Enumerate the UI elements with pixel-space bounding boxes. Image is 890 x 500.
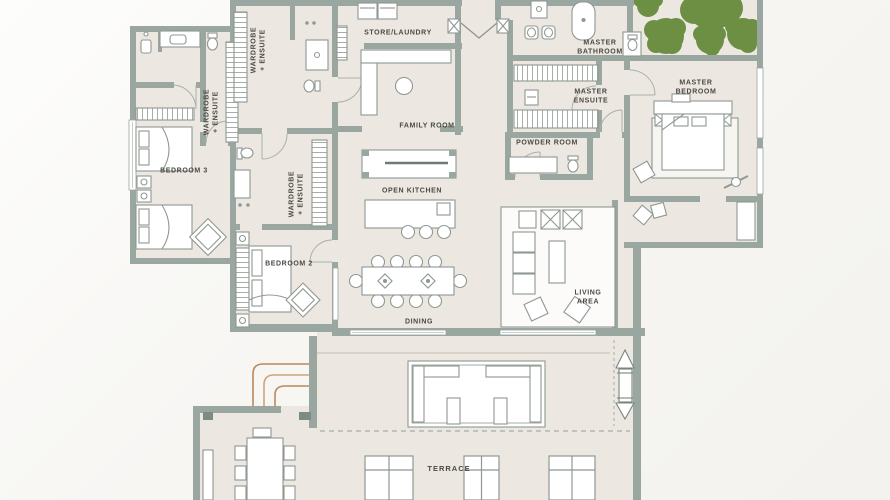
pillow-icon bbox=[252, 280, 262, 306]
toilet-icon bbox=[208, 38, 218, 50]
counter-icon bbox=[361, 63, 377, 115]
floor-plan-canvas: WARDROBE + ENSUITE WARDROBE + ENSUITE WA… bbox=[0, 0, 890, 500]
side-table-icon bbox=[519, 211, 536, 228]
window-icon bbox=[333, 268, 338, 320]
chair-icon bbox=[235, 486, 246, 500]
stool-icon bbox=[402, 226, 415, 239]
hook-icon bbox=[144, 32, 148, 36]
dryer-icon bbox=[378, 3, 397, 19]
living-area-furniture bbox=[501, 207, 615, 327]
table-round-icon bbox=[396, 78, 413, 95]
window-icon bbox=[757, 148, 763, 194]
steps-line bbox=[275, 386, 311, 408]
chair-icon bbox=[284, 466, 295, 480]
vanity-icon bbox=[509, 157, 557, 173]
floor-plan-drawing bbox=[0, 0, 890, 500]
wardrobe-icon bbox=[234, 12, 247, 102]
outdoor-sofa-icon bbox=[530, 366, 541, 422]
chair-icon bbox=[284, 486, 295, 500]
toilet-icon bbox=[241, 148, 253, 158]
sink-icon bbox=[141, 40, 151, 53]
sofa-seat-icon bbox=[513, 274, 535, 294]
island-sink-icon bbox=[437, 203, 450, 215]
sofa-seat-icon bbox=[513, 232, 535, 252]
window-icon bbox=[757, 68, 763, 138]
pillow-icon bbox=[139, 149, 149, 165]
pillow-icon bbox=[692, 117, 706, 126]
spot-icon bbox=[247, 204, 249, 206]
toilet-icon bbox=[628, 40, 637, 51]
steps-line bbox=[264, 375, 311, 408]
basin-icon bbox=[545, 28, 553, 37]
dining-table bbox=[362, 267, 454, 295]
toilet-tank-icon bbox=[208, 33, 217, 38]
spot-icon bbox=[313, 22, 315, 24]
wardrobe-icon bbox=[514, 65, 598, 81]
toilet-tank-icon bbox=[315, 81, 320, 91]
lamp-icon bbox=[141, 193, 147, 199]
ensuite-c-fixtures bbox=[234, 148, 253, 206]
sofa-seat-icon bbox=[513, 253, 535, 273]
outdoor-table bbox=[247, 438, 283, 500]
ottoman-icon bbox=[494, 398, 507, 424]
shower-icon bbox=[234, 170, 250, 198]
lamp-icon bbox=[141, 179, 147, 185]
wardrobe-icon bbox=[514, 110, 598, 128]
armchair-icon bbox=[651, 202, 667, 218]
stool-icon bbox=[438, 226, 451, 239]
chair-icon bbox=[372, 295, 385, 308]
pillow-icon bbox=[674, 117, 688, 126]
headboard-icon bbox=[654, 101, 732, 114]
telescope-icon bbox=[732, 178, 741, 187]
stool-icon bbox=[420, 226, 433, 239]
dresser-icon bbox=[136, 108, 194, 120]
shower-head-icon bbox=[537, 7, 542, 12]
spot-icon bbox=[306, 22, 308, 24]
toilet-icon bbox=[304, 80, 314, 92]
outdoor-sofa-icon bbox=[413, 366, 424, 422]
terrace-windows bbox=[365, 456, 595, 500]
chair-icon bbox=[235, 446, 246, 460]
pillow-icon bbox=[139, 227, 149, 243]
spot-icon bbox=[239, 204, 241, 206]
ottoman-icon bbox=[447, 398, 460, 424]
toilet-tank-icon bbox=[568, 156, 578, 160]
basin-icon bbox=[170, 35, 186, 44]
chair-icon bbox=[391, 295, 404, 308]
coffee-table-icon bbox=[549, 241, 565, 283]
terrace-lounge bbox=[408, 361, 545, 427]
pillow-icon bbox=[139, 209, 149, 225]
toilet-tank-icon bbox=[628, 35, 637, 39]
chair-icon bbox=[253, 428, 271, 437]
lamp-icon bbox=[240, 236, 246, 242]
tree-icon bbox=[644, 18, 686, 54]
chair-icon bbox=[410, 295, 423, 308]
tv-icon bbox=[672, 94, 690, 102]
shelving-icon bbox=[337, 26, 347, 60]
toilet-icon bbox=[568, 160, 578, 172]
chair-icon bbox=[284, 446, 295, 460]
shower-drain-icon bbox=[315, 53, 320, 58]
chair-icon bbox=[235, 466, 246, 480]
wardrobe-icon bbox=[312, 140, 327, 226]
planter-icon bbox=[203, 450, 213, 500]
counter-icon bbox=[361, 50, 451, 63]
wardrobe-icon bbox=[236, 248, 249, 310]
drain-icon bbox=[582, 19, 585, 22]
washer-icon bbox=[358, 3, 377, 19]
pillow-icon bbox=[252, 250, 262, 276]
basin-icon bbox=[528, 28, 536, 37]
lamp-icon bbox=[240, 318, 246, 324]
bench-icon bbox=[737, 202, 755, 240]
laundry-machines bbox=[358, 3, 397, 19]
chair-icon bbox=[454, 275, 467, 288]
chair-icon bbox=[350, 275, 363, 288]
chair-icon bbox=[429, 295, 442, 308]
pillow-icon bbox=[139, 131, 149, 147]
